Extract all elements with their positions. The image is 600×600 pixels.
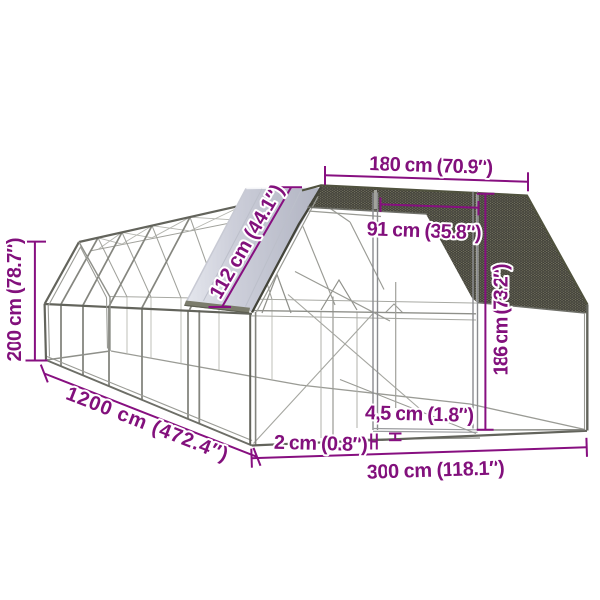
svg-text:4,5 cm (1.8″): 4,5 cm (1.8″)	[365, 402, 475, 427]
svg-text:300 cm (118.1″): 300 cm (118.1″)	[366, 457, 505, 483]
svg-text:180 cm (70.9″): 180 cm (70.9″)	[369, 153, 494, 179]
svg-text:2 cm (0.8″): 2 cm (0.8″)	[274, 432, 369, 456]
svg-text:186 cm (73.2″): 186 cm (73.2″)	[491, 264, 513, 376]
svg-text:91 cm (35.8″): 91 cm (35.8″)	[366, 218, 482, 244]
svg-text:200 cm (78.7″): 200 cm (78.7″)	[4, 238, 26, 362]
